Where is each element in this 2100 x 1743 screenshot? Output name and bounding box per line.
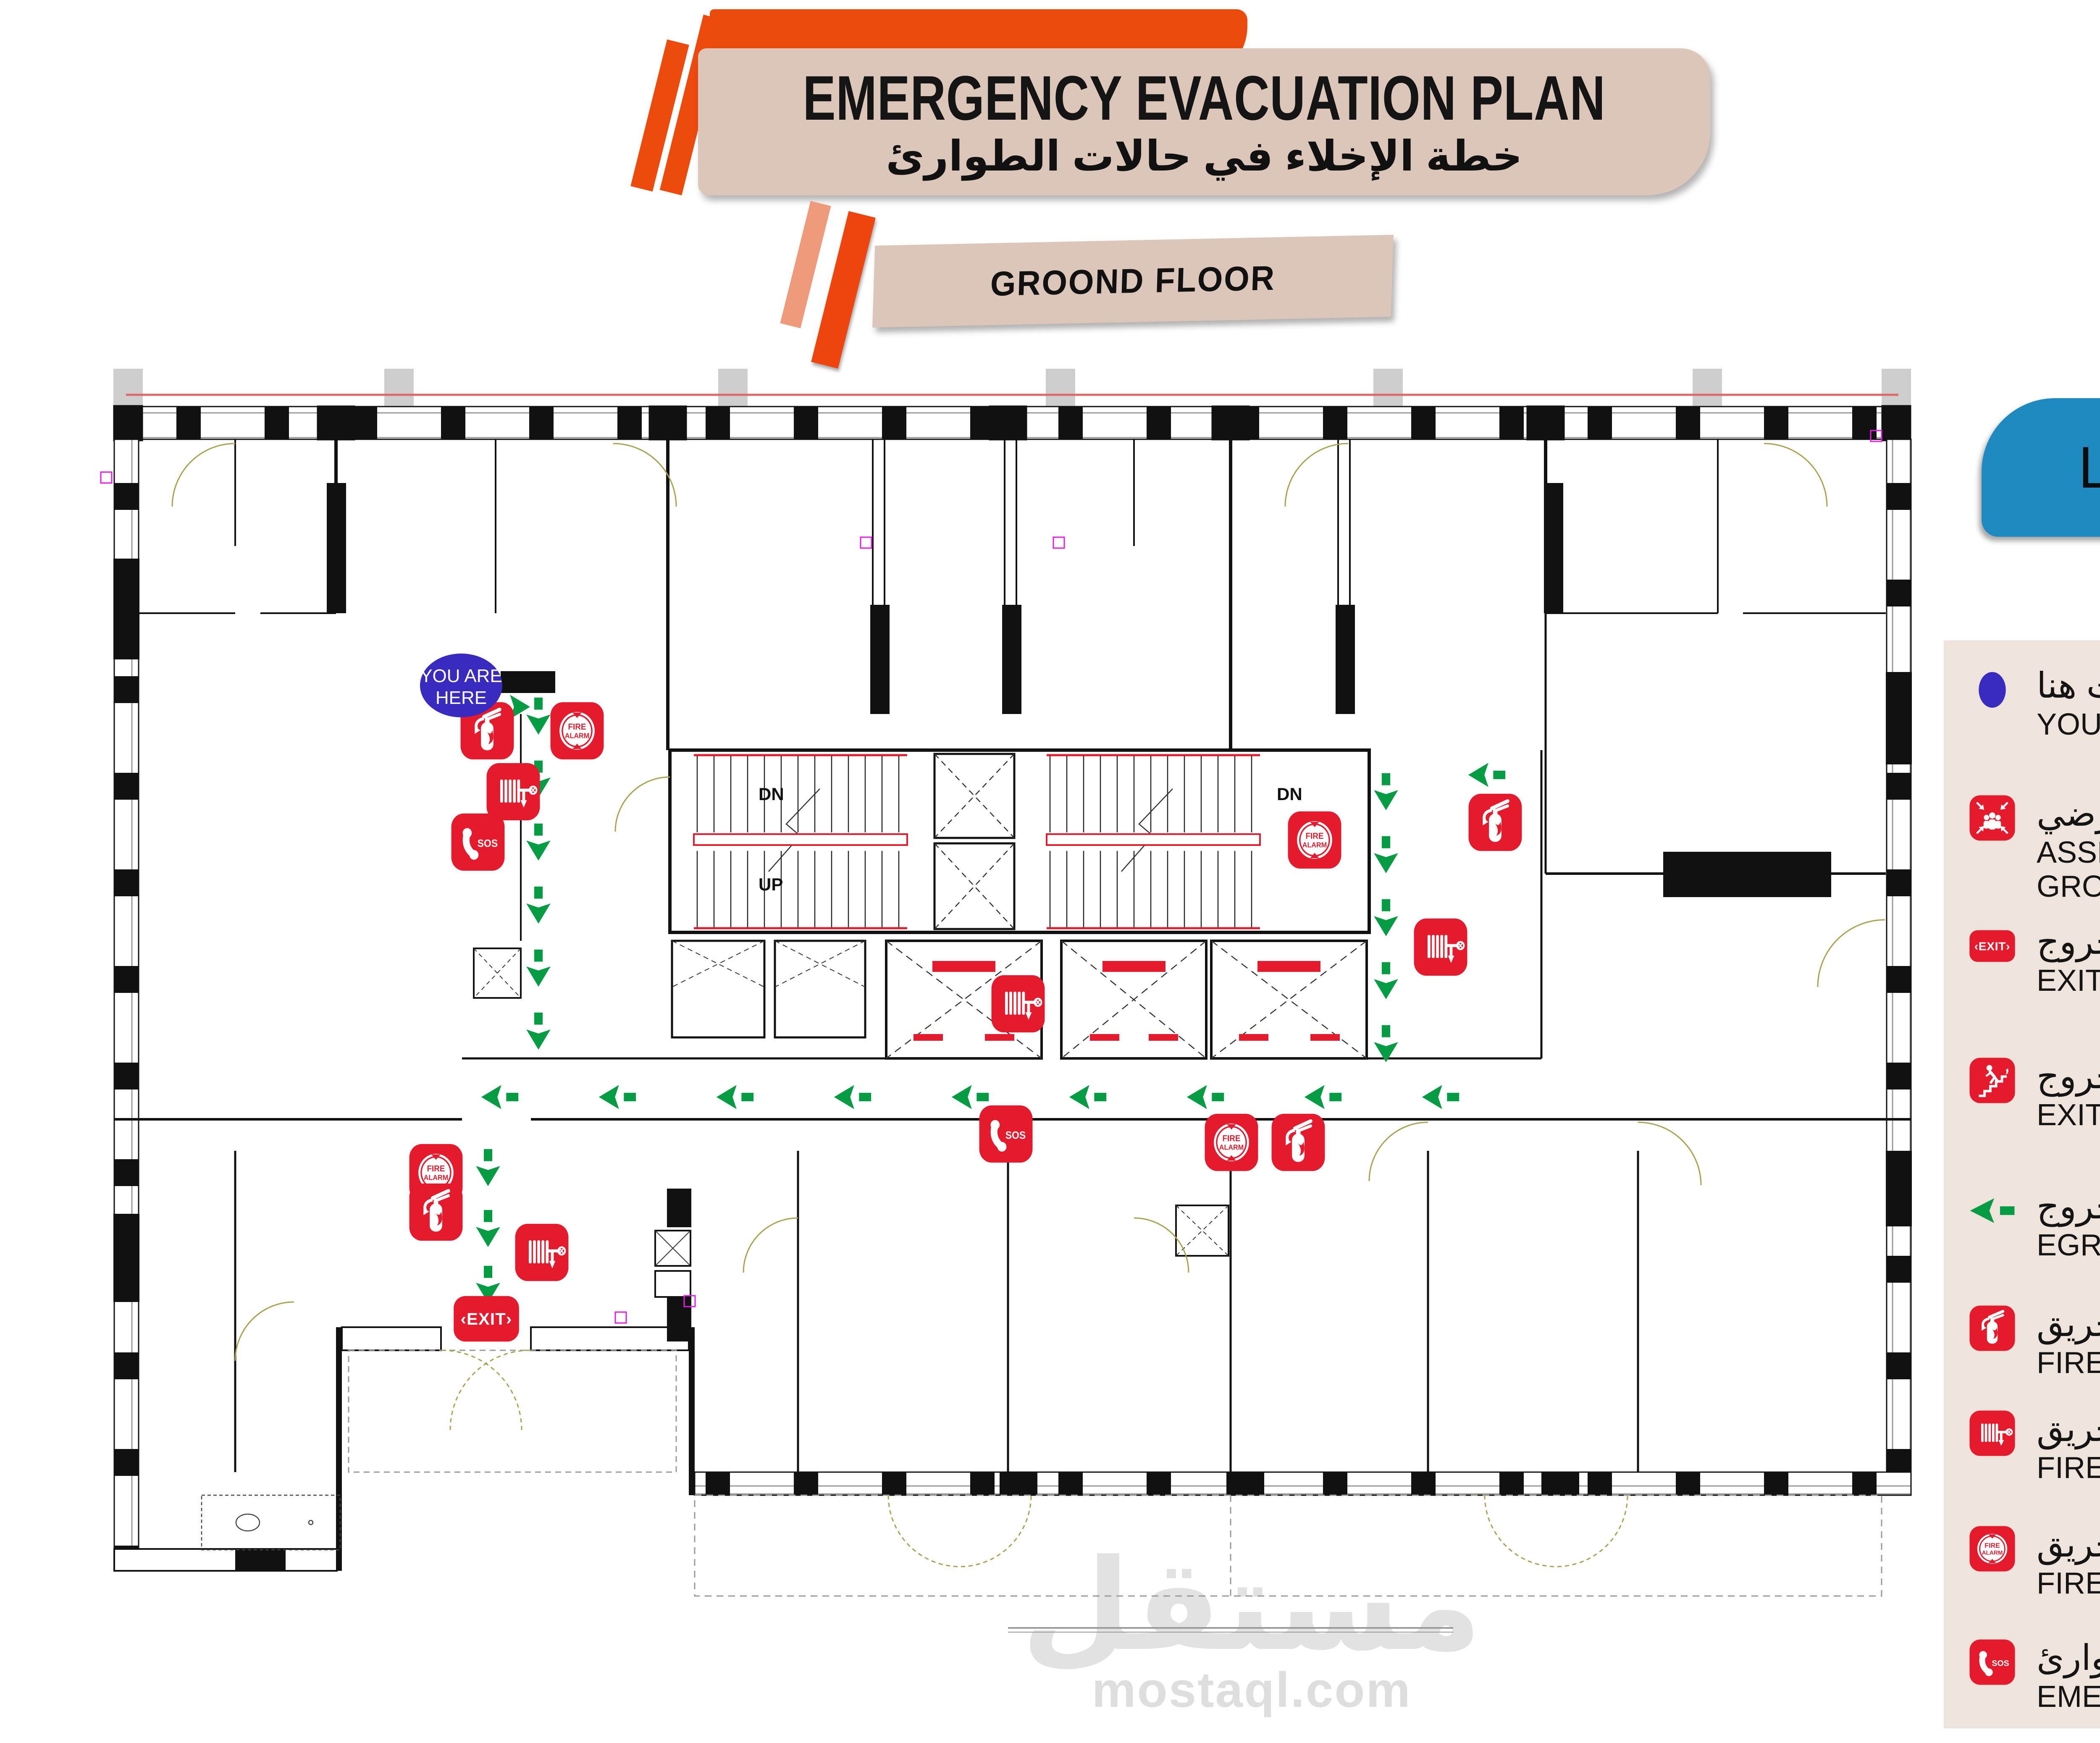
legend-item-egress-path: ممر الخروج EGRESS PATH: [1968, 1186, 2100, 1263]
legend-ar-label: هاتف الطوارئ: [2037, 1638, 2100, 1677]
legend-item-emergency-telephone: هاتف الطوارئ EMERGENCY TELEPHONE: [1968, 1638, 2100, 1714]
floor-banner: GROOND FLOOR: [872, 235, 1394, 328]
legend-en-label: FIRE HOSE REEL: [2037, 1451, 2100, 1485]
exit-sign-icon: [1968, 922, 2016, 970]
egress-path-icon: [1968, 1186, 2016, 1235]
legend-item-fire-hose-reel: بكرة خرطوم الحريق FIRE HOSE REEL: [1968, 1409, 2100, 1485]
fire-hose-reel-icon: [1968, 1409, 2016, 1457]
egress-arrow-left: [952, 1085, 989, 1109]
header-group: EMERGENCY EVACUATION PLAN خطة الإخلاء في…: [0, 0, 2100, 378]
fire-alarm-icon: [1288, 811, 1341, 869]
egress-arrow-left: [1305, 1085, 1341, 1109]
you-are-here-icon: [1968, 666, 2016, 714]
legend-panel: أنت هنا YOU ARE HERE نقطة تجمع بالطابق ا…: [1944, 640, 2100, 1728]
egress-arrow-left: [1187, 1085, 1224, 1109]
you-are-here-label: HERE: [436, 688, 487, 708]
egress-arrow-down: [1374, 836, 1398, 873]
stair-direction-label: DN: [1277, 784, 1302, 804]
floor-label: GROOND FLOOR: [990, 258, 1276, 304]
egress-arrow-left: [481, 1085, 518, 1109]
legend-en-label: FIRE EXTINGUISHER: [2037, 1346, 2100, 1380]
assembly-point-icon: [1968, 794, 2016, 842]
floor-banner-stripe-icon: [780, 201, 831, 328]
egress-arrow-down: [1374, 773, 1398, 810]
emergency-telephone-icon: [1968, 1638, 2016, 1686]
legend-item-fire-extinguisher: طفاية الحريق FIRE EXTINGUISHER: [1968, 1304, 2100, 1380]
egress-arrow-down: [526, 698, 551, 735]
fire-hose-reel-icon: [992, 975, 1045, 1032]
egress-arrow-down: [1374, 962, 1398, 999]
fire-extinguisher-icon: [1469, 794, 1522, 851]
exit-sign-icon: [454, 1296, 519, 1342]
legend-item-assembly-point: نقطة تجمع بالطابق الأرضي ASSEMBLY POINT …: [1968, 794, 2100, 903]
fire-alarm-icon: [1205, 1114, 1258, 1171]
egress-arrow-down: [526, 1013, 551, 1050]
fire-hose-reel-icon: [487, 763, 540, 820]
legend-ar-label: انذار جريق: [2037, 1525, 2100, 1564]
fire-hose-reel-icon: [515, 1224, 569, 1281]
legend-ar-label: طفاية الحريق: [2037, 1304, 2100, 1344]
legend-ar-label: نقطة تجمع بالطابق الأرضي: [2037, 794, 2100, 833]
legend-item-fire-alarm: انذار جريق FIREALARM: [1968, 1525, 2100, 1601]
legend-ar-label: أنت هنا: [2037, 666, 2100, 705]
fire-alarm-icon: [1968, 1525, 2016, 1573]
egress-arrow-down: [1374, 1025, 1398, 1062]
fire-extinguisher-icon: [1272, 1114, 1325, 1171]
stair-direction-label: DN: [759, 784, 784, 804]
fire-alarm-icon: [551, 702, 604, 759]
egress-arrow-left: [1468, 763, 1505, 787]
legend-item-exit-stairway: سلم الخروج EXIT STAIRWAY: [1968, 1056, 2100, 1132]
page-title: EMERGENCY EVACUATION PLAN: [803, 66, 1605, 129]
egress-arrow-down: [1374, 899, 1398, 936]
legend-ar-label: بكرة خرطوم الحريق: [2037, 1409, 2100, 1449]
legend-en-label: ASSEMBLY POINT AT THE GROUND FLOOR: [2037, 836, 2100, 903]
legend-item-exit-sign: علامة خروج EXIT SIGN: [1968, 922, 2100, 998]
cad-marker: [101, 472, 112, 483]
legend-item-you-are-here: أنت هنا YOU ARE HERE: [1968, 666, 2100, 742]
fire-extinguisher-icon: [1968, 1304, 2016, 1352]
legend-ar-label: ممر الخروج: [2037, 1186, 2100, 1226]
legend-en-label: EMERGENCY TELEPHONE: [2037, 1680, 2100, 1714]
kitchen-fixtures: [202, 1495, 340, 1550]
service-rooms: [672, 941, 865, 1037]
legend-en-label: FIREALARM: [2037, 1567, 2100, 1601]
fire-extinguisher-icon: [409, 1184, 463, 1241]
fire-hose-reel-icon: [1414, 919, 1467, 976]
egress-arrow-left: [1422, 1085, 1459, 1109]
legend-en-label: EGRESS PATH: [2037, 1228, 2100, 1263]
egress-arrow-down: [526, 950, 551, 987]
legend-ar-label: علامة خروج: [2037, 922, 2100, 961]
legend-en-label: YOU ARE HERE: [2037, 708, 2100, 742]
page-title-arabic: خطة الإخلاء في حالات الطوارئ: [886, 135, 1522, 177]
legend-en-label: EXIT SIGN: [2037, 964, 2100, 998]
egress-arrow-down: [526, 824, 551, 861]
exit-stairway-icon: [1968, 1056, 2016, 1105]
legend-en-label: EXIT STAIRWAY: [2037, 1098, 2100, 1132]
egress-arrow-left: [599, 1085, 636, 1109]
header-banner: EMERGENCY EVACUATION PLAN خطة الإخلاء في…: [698, 48, 1710, 195]
egress-arrow-down: [476, 1210, 500, 1247]
emergency-telephone-icon: [979, 1105, 1033, 1163]
egress-arrow-left: [1069, 1085, 1106, 1109]
legend-ar-label: سلم الخروج: [2037, 1056, 2100, 1096]
emergency-telephone-icon: [451, 814, 505, 871]
egress-arrow-down: [476, 1149, 500, 1186]
you-are-here-label: YOU ARE: [420, 666, 502, 686]
egress-arrow-down: [526, 887, 551, 924]
egress-arrow-left: [834, 1085, 871, 1109]
egress-arrow-left: [717, 1085, 753, 1109]
cad-marker: [1053, 537, 1064, 548]
stair-elevator-core: [670, 750, 1369, 932]
stair-direction-label: UP: [759, 874, 783, 894]
cad-marker: [861, 537, 871, 548]
cad-marker: [615, 1312, 626, 1323]
legend-title: LEGEND: [2079, 433, 2100, 501]
